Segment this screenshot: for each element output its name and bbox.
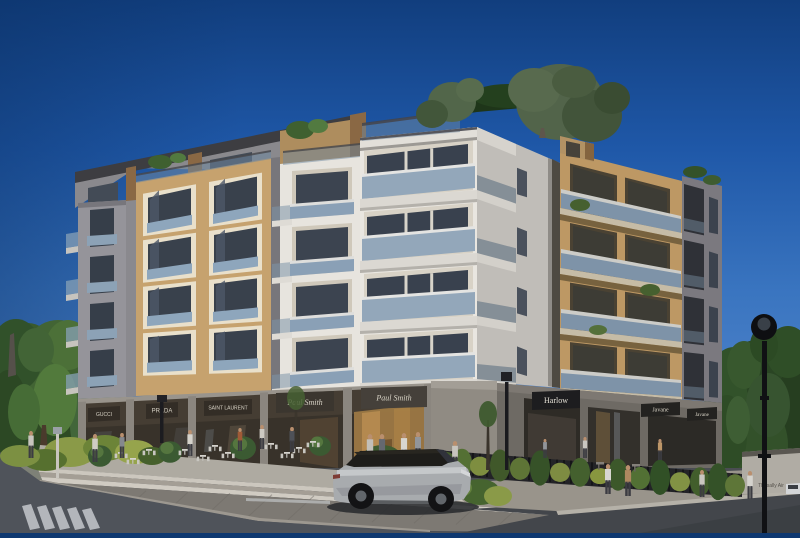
- svg-text:Harlow: Harlow: [544, 396, 568, 405]
- svg-text:Javane: Javane: [695, 413, 709, 418]
- svg-text:Javane: Javane: [652, 408, 669, 414]
- svg-text:Paul Smith: Paul Smith: [375, 393, 411, 402]
- svg-text:GUCCI: GUCCI: [96, 412, 112, 418]
- svg-text:SAINT LAURENT: SAINT LAURENT: [208, 405, 247, 411]
